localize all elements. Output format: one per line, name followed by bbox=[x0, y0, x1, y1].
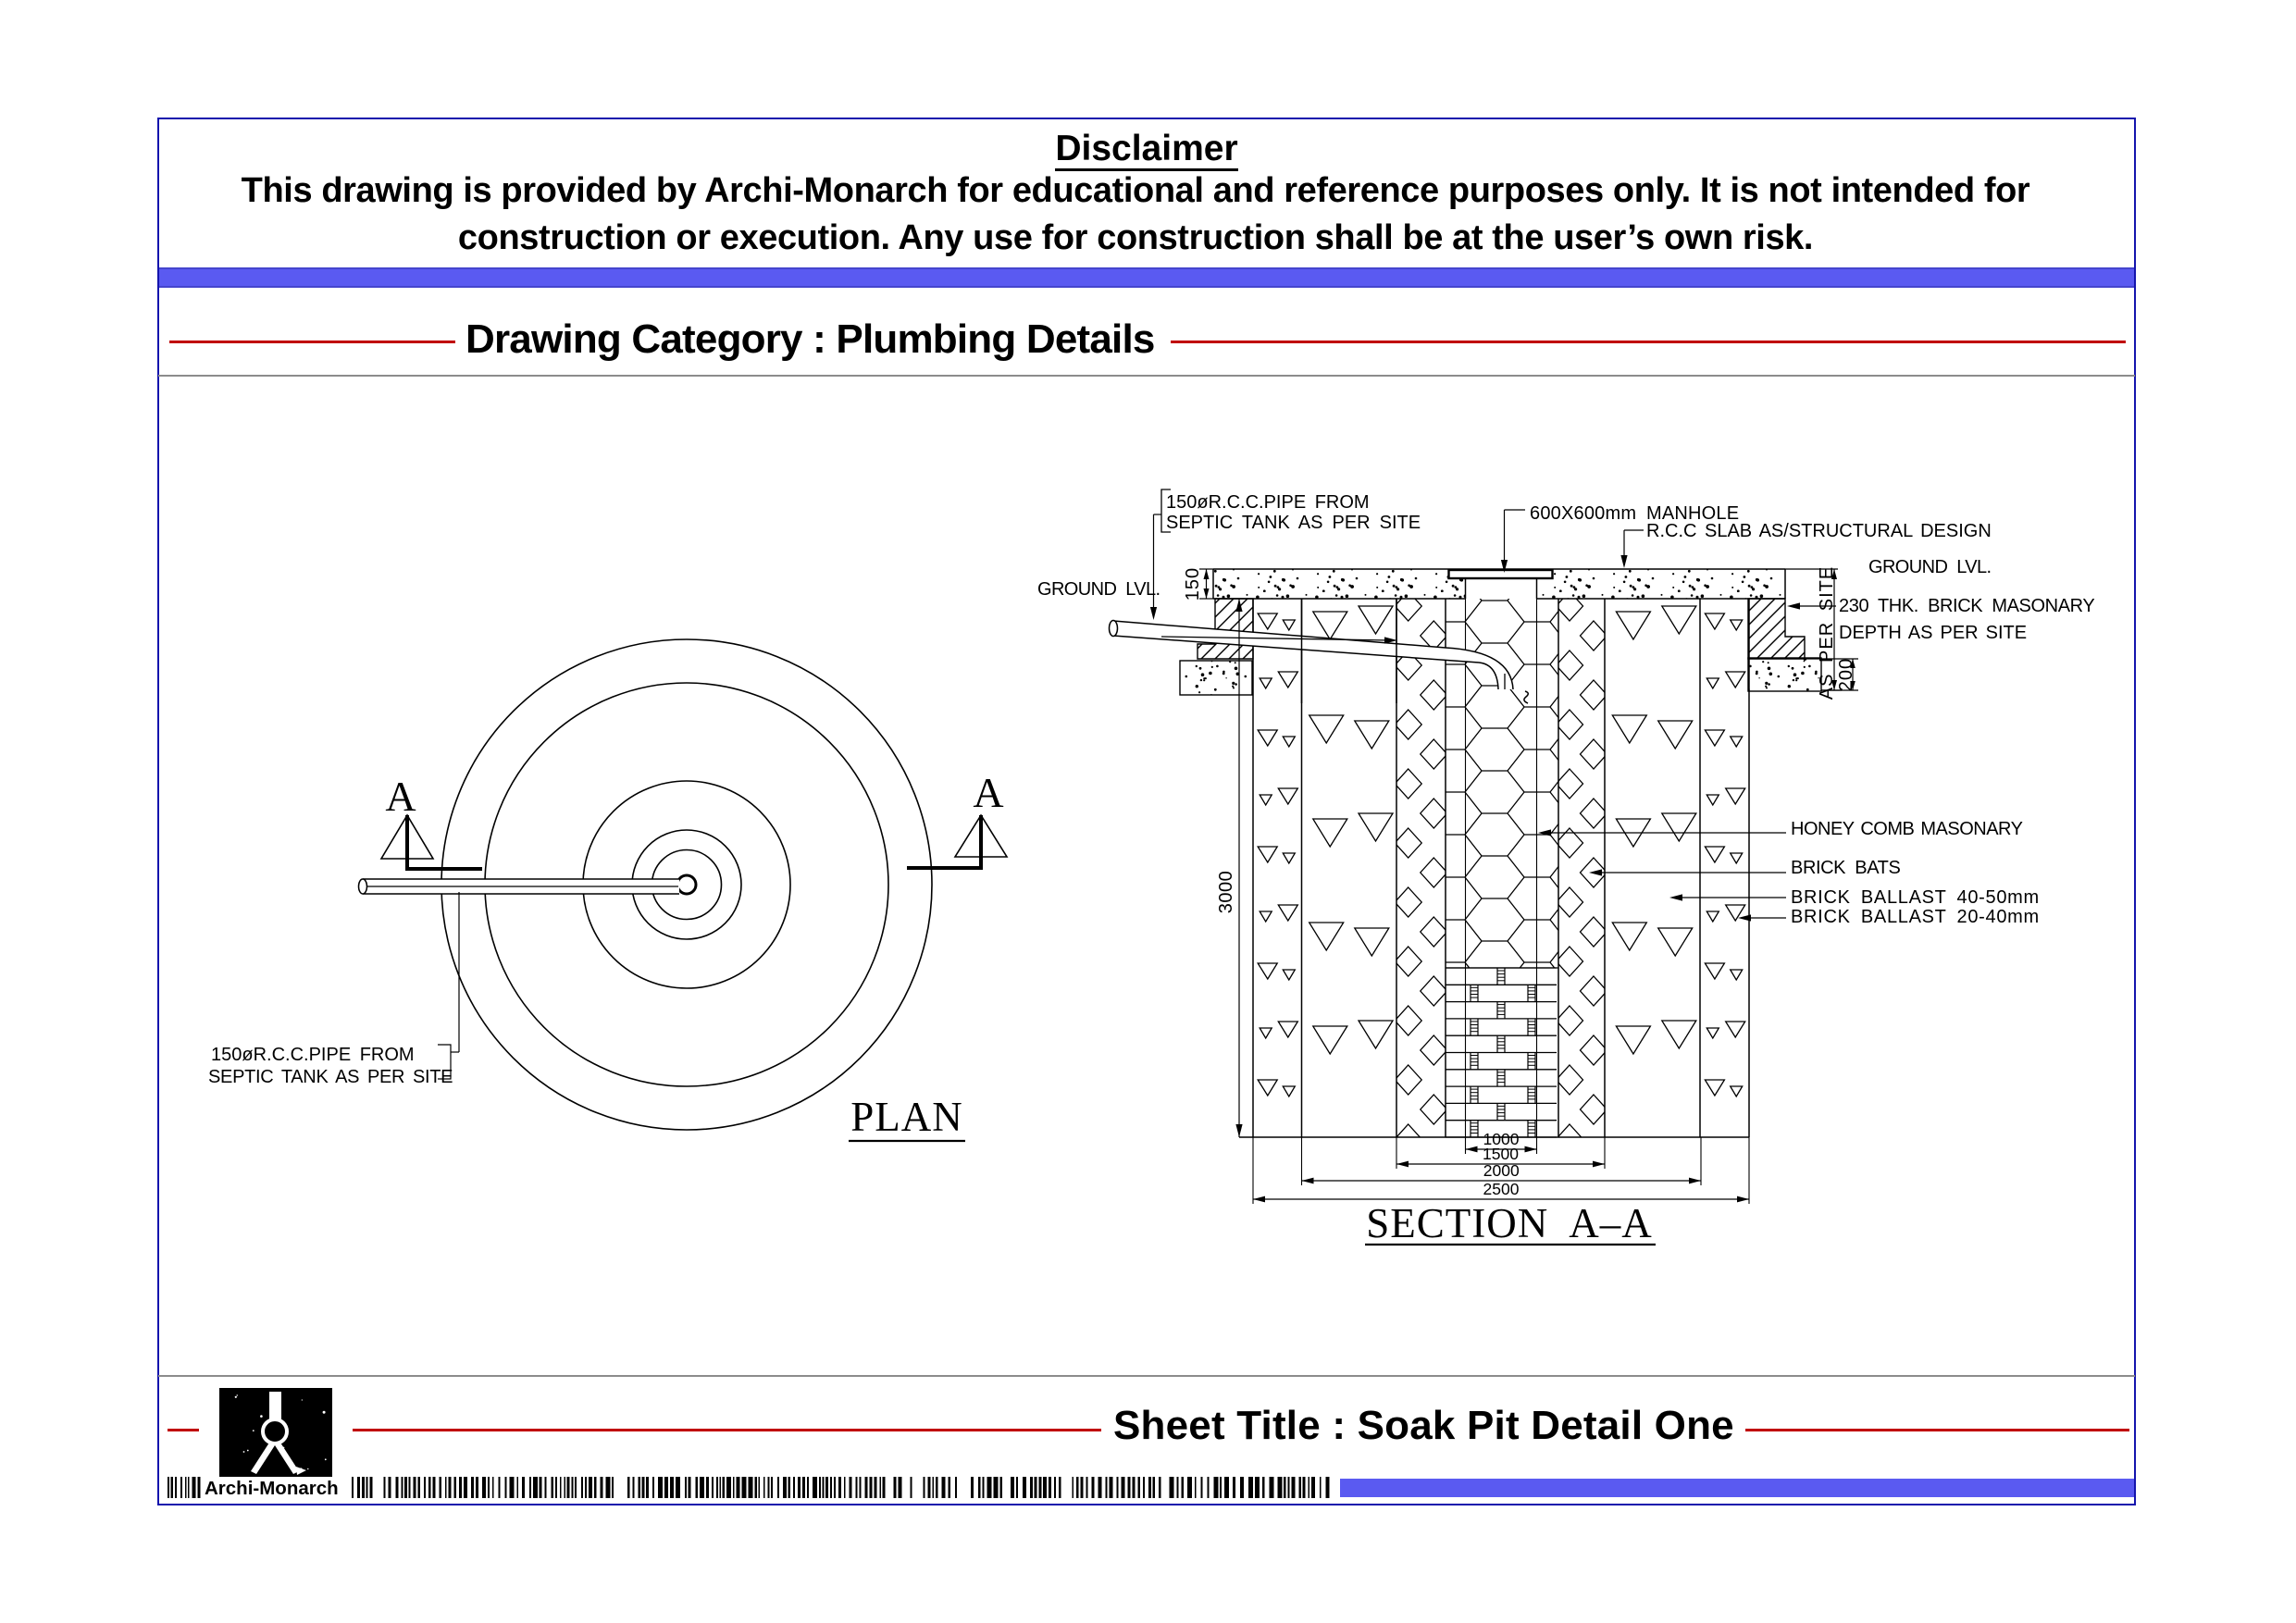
svg-text:BRICK BALLAST 20-40mm: BRICK BALLAST 20-40mm bbox=[1791, 907, 2040, 927]
svg-text:230 THK. BRICK MASONARY: 230 THK. BRICK MASONARY bbox=[1839, 596, 2094, 616]
svg-text:GROUND LVL.: GROUND LVL. bbox=[1868, 557, 1992, 577]
svg-text:150øR.C.C.PIPE FROM: 150øR.C.C.PIPE FROM bbox=[211, 1045, 415, 1065]
svg-text:SEPTIC TANK AS PER SITE: SEPTIC TANK AS PER SITE bbox=[208, 1067, 453, 1087]
svg-text:GROUND LVL.: GROUND LVL. bbox=[1037, 579, 1160, 600]
svg-text:A: A bbox=[973, 769, 1003, 816]
svg-text:3000: 3000 bbox=[1216, 871, 1236, 914]
svg-text:SEPTIC TANK AS PER SITE: SEPTIC TANK AS PER SITE bbox=[1166, 513, 1421, 533]
svg-text:1500: 1500 bbox=[1483, 1145, 1519, 1163]
svg-text:200: 200 bbox=[1836, 658, 1856, 691]
svg-text:BRICK BALLAST 40-50mm: BRICK BALLAST 40-50mm bbox=[1791, 887, 2040, 908]
svg-text:DEPTH AS PER SITE: DEPTH AS PER SITE bbox=[1839, 623, 2027, 643]
svg-text:BRICK BATS: BRICK BATS bbox=[1791, 858, 1900, 878]
svg-text:HONEY COMB MASONARY: HONEY COMB MASONARY bbox=[1791, 819, 2023, 839]
svg-text:2500: 2500 bbox=[1483, 1180, 1520, 1198]
svg-text:AS PER SITE: AS PER SITE bbox=[1817, 566, 1837, 700]
svg-text:150øR.C.C.PIPE FROM: 150øR.C.C.PIPE FROM bbox=[1166, 492, 1370, 513]
svg-text:R.C.C SLAB AS/STRUCTURAL DESIG: R.C.C SLAB AS/STRUCTURAL DESIGN bbox=[1646, 521, 1992, 541]
svg-text:A: A bbox=[385, 773, 416, 820]
svg-text:2000: 2000 bbox=[1483, 1161, 1520, 1180]
svg-text:SECTION A–A: SECTION A–A bbox=[1366, 1200, 1653, 1246]
svg-text:150: 150 bbox=[1183, 567, 1203, 601]
svg-text:PLAN: PLAN bbox=[850, 1094, 963, 1140]
